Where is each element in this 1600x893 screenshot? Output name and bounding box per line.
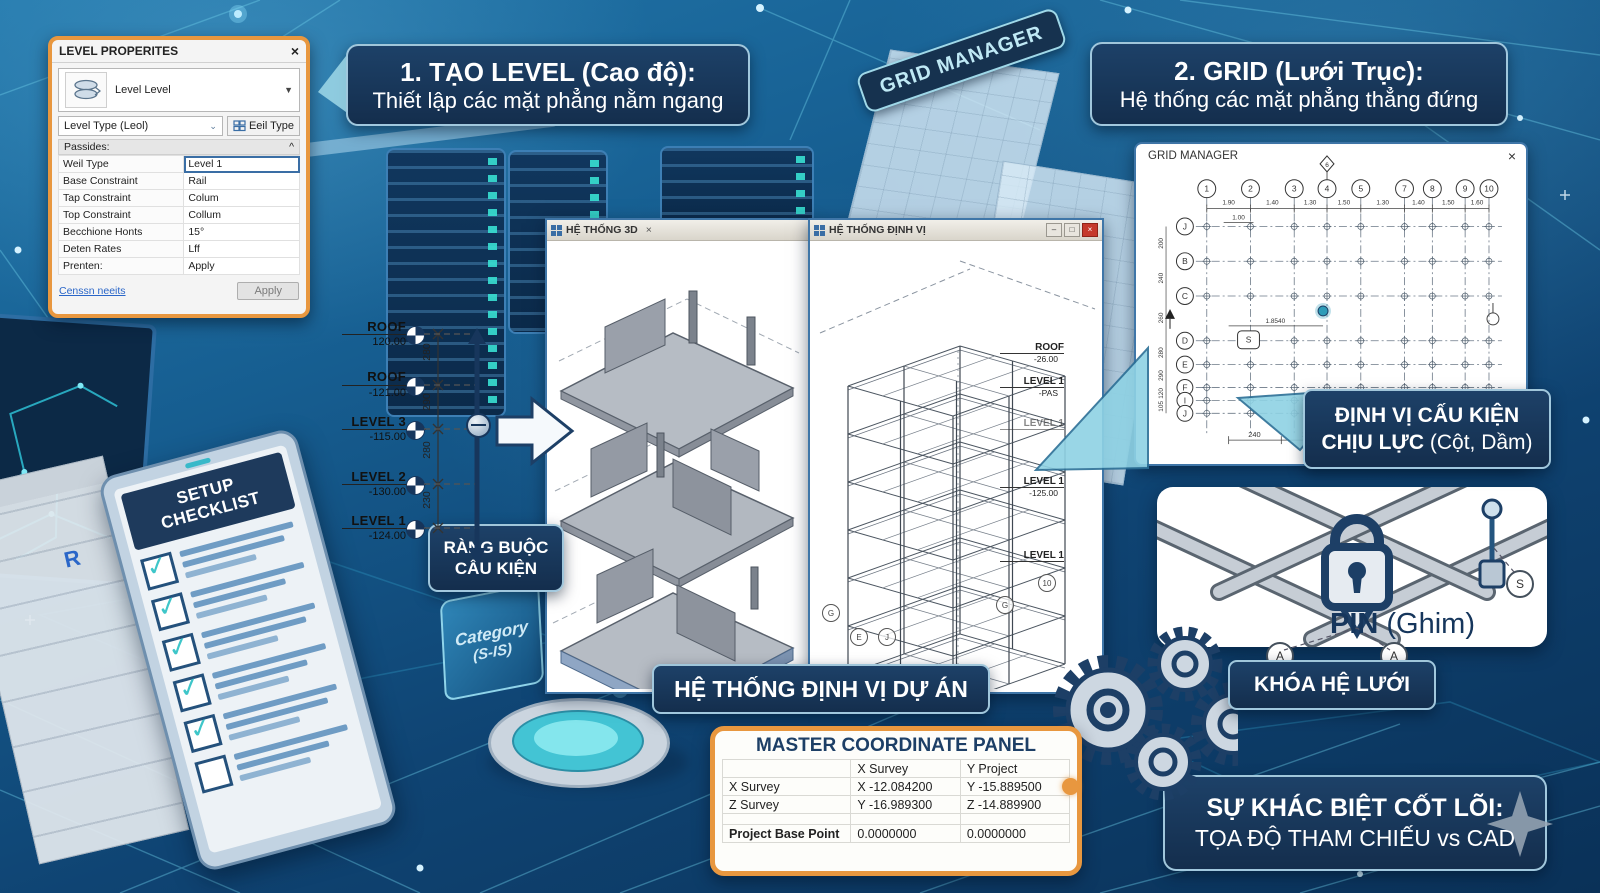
button-disc-highlight [534, 720, 618, 756]
table-row: Top ConstraintCollum [59, 207, 300, 224]
table-row: X Survey X -12.084200 Y -15.889500 [723, 778, 1070, 796]
viewer-3d-tabbar: HỆ THỐNG 3D × [547, 220, 810, 241]
banner-subtitle: TỌA ĐỘ THAM CHIẾU vs CAD [1165, 825, 1545, 852]
grid-bubble-label: 9 [1463, 184, 1468, 194]
checkbox-checked[interactable]: ✓ [183, 714, 222, 753]
level-spacing: 290 [421, 393, 433, 411]
prop-value[interactable]: Colum [184, 190, 300, 207]
prop-value[interactable]: Level 1 [184, 156, 300, 173]
highlighted-grid-node[interactable] [1318, 306, 1328, 316]
level-elevation[interactable]: -121.00 [340, 387, 406, 399]
master-coordinate-panel: MASTER COORDINATE PANEL X Survey Y Proje… [710, 726, 1082, 876]
grid-bubble-label: 10 [1484, 184, 1494, 194]
grid-dim: 1.50 [1442, 200, 1455, 207]
grid-dim: 1.50 [1338, 200, 1351, 207]
cell: Z Survey [723, 796, 851, 814]
cell[interactable]: Y -15.889500 [960, 778, 1069, 796]
type-selector[interactable]: Level Level ▼ [58, 68, 300, 112]
grid-bubble-label: I [1184, 395, 1186, 405]
banner-grid: 2. GRID (Lưới Trục): Hệ thống các mặt ph… [1090, 42, 1508, 126]
wf-level: LEVEL 1 -PAS [1000, 376, 1064, 398]
grid-bubble-label: 8 [1430, 184, 1435, 194]
checkbox-checked[interactable]: ✓ [151, 592, 190, 631]
viewer-3d-title[interactable]: HỆ THỐNG 3D [566, 224, 638, 236]
grid-bubble-label: 2 [1248, 184, 1253, 194]
check-icon: ✓ [175, 670, 204, 706]
prop-value[interactable]: 15° [184, 224, 300, 241]
prop-label: Top Constraint [59, 207, 184, 224]
prop-value[interactable]: Collum [184, 207, 300, 224]
prop-label: Becchione Honts [59, 224, 184, 241]
wf-level: LEVEL 1 [1000, 418, 1064, 430]
view-icon [814, 225, 825, 236]
wf-level: LEVEL 1 -125.00 [1000, 476, 1064, 498]
grid-dim: 1.30 [1304, 200, 1317, 207]
apply-button[interactable]: Apply [237, 282, 299, 300]
table-row: Weil TypeLevel 1 [59, 156, 300, 173]
wireframe-structure [810, 241, 1098, 689]
grid-dim: 280 [1158, 347, 1165, 358]
prop-label: Tap Constraint [59, 190, 184, 207]
grid-bubble-label: 7 [1402, 184, 1407, 194]
grid-dim: 1.40 [1412, 200, 1425, 207]
view-icon [551, 225, 562, 236]
cell[interactable]: X -12.084200 [851, 778, 960, 796]
wireframe-window: HỆ THỐNG ĐỊNH VỊ – □ × ROOF -26.00 LEVEL… [808, 218, 1104, 694]
minimize-button[interactable]: – [1046, 223, 1062, 237]
table-row: Becchione Honts15° [59, 224, 300, 241]
table-header-row: X Survey Y Project [723, 760, 1070, 778]
level-properties-dialog: LEVEL PROPERITES × Level Level ▼ Level T… [48, 36, 310, 318]
header-cell [723, 760, 851, 778]
table-row: Project Base Point 0.0000000 0.0000000 [723, 825, 1070, 843]
grid-bubble-label: 1 [1204, 184, 1209, 194]
cell: Project Base Point [723, 825, 851, 843]
prop-label: Base Constraint [59, 173, 184, 190]
wireframe-titlebar: HỆ THỐNG ĐỊNH VỊ – □ × [810, 220, 1102, 241]
table-row: Tap ConstraintColum [59, 190, 300, 207]
type-selector-label: Level Level [115, 84, 171, 96]
pin-label-rest: (Ghim) [1378, 608, 1475, 640]
coordinate-table: X Survey Y Project X Survey X -12.084200… [722, 759, 1070, 843]
level-name: LEVEL 1 [1000, 550, 1064, 562]
category-box: Category (S-IS) [442, 592, 542, 692]
cell[interactable]: Y -16.989300 [851, 796, 960, 814]
level-marker-icon [406, 421, 425, 440]
grid-dim: 290 [1158, 370, 1165, 381]
close-icon[interactable]: × [1508, 148, 1516, 164]
level-name[interactable]: LEVEL 1 [336, 513, 406, 528]
level-marker-icon [406, 520, 425, 539]
edit-type-label: Eeil Type [249, 120, 294, 132]
grid-dim: 1.30 [1376, 200, 1389, 207]
prop-label: Weil Type [59, 156, 184, 173]
prop-value[interactable]: Apply [184, 258, 300, 275]
grid-bubble-label: F [1182, 382, 1187, 392]
dialog-titlebar: LEVEL PROPERITES × [52, 40, 306, 63]
table-row: Z Survey Y -16.989300 Z -14.889900 [723, 796, 1070, 814]
grid-bubble: J [878, 628, 896, 646]
level-spacing: 280 [421, 343, 433, 361]
prop-label: Prenten: [59, 258, 184, 275]
grid-dim: 240 [1158, 272, 1165, 283]
grid-diamond-bubble: 6 [1325, 162, 1329, 169]
grid-bubble-label: 5 [1358, 184, 1363, 194]
level-elevation[interactable]: -124.00 [340, 530, 406, 542]
grid-bubble-label: 3 [1292, 184, 1297, 194]
table-row: Deten RatesLff [59, 241, 300, 258]
grid-bubble: G [996, 596, 1014, 614]
table-row-empty [723, 814, 1070, 825]
check-icon: ✓ [164, 630, 193, 666]
level-name[interactable]: LEVEL 2 [336, 469, 406, 484]
grid-bubble: G [822, 604, 840, 622]
level-name[interactable]: ROOF [336, 369, 406, 384]
grid-bubble-s: S [1506, 570, 1534, 598]
banner-title: KHÓA HỆ LƯỚI [1230, 673, 1434, 697]
parameters-section-header[interactable]: Passides: ^ [58, 139, 300, 155]
check-icon: ✓ [153, 589, 182, 625]
prop-label: Deten Rates [59, 241, 184, 258]
level-markers: ROOF 120.00 ROOF -121.00 LEVEL 3 -115.00… [336, 315, 486, 555]
cell[interactable]: Z -14.889900 [960, 796, 1069, 814]
close-icon[interactable]: × [291, 43, 299, 59]
checkbox-checked[interactable]: ✓ [140, 552, 179, 591]
close-button[interactable]: × [1082, 223, 1098, 237]
grid-dim: 260 [1158, 312, 1165, 323]
chevron-down-icon: ▼ [284, 85, 293, 95]
level-slider-handle[interactable] [466, 413, 491, 438]
banner-create-level: 1. TẠO LEVEL (Cao độ): Thiết lập các mặt… [346, 44, 750, 126]
pin-label-bold: PIN [1330, 608, 1378, 640]
callout-line2: (Cột, Dầm) [1424, 431, 1533, 454]
s-label: S [1246, 335, 1252, 345]
grid-dim: 1.00 [1232, 215, 1245, 222]
structural-callout: ĐỊNH VỊ CẤU KIỆN CHỊU LỰC (Cột, Dầm) [1303, 389, 1551, 469]
edit-type-icon [233, 120, 246, 132]
grid-bubble-label: J [1183, 221, 1187, 231]
dialog-title: LEVEL PROPERITES [59, 44, 178, 58]
callout-line1: ĐỊNH VỊ CẤU KIỆN [1305, 402, 1549, 429]
grid-bubble-label: E [1182, 360, 1188, 370]
grid-dim: 1.40 [1266, 200, 1279, 207]
check-icon: ✓ [186, 711, 215, 747]
checkbox-checked[interactable]: ✓ [173, 673, 212, 712]
grid-dim: 120 [1158, 388, 1165, 399]
level-elevation[interactable]: -130.00 [340, 486, 406, 498]
label-line: RÀNG BUỘC [430, 537, 562, 558]
cell: X Survey [723, 778, 851, 796]
maximize-button[interactable]: □ [1064, 223, 1080, 237]
grid-dim: 105 [1158, 401, 1165, 412]
wf-level: ROOF -26.00 [1000, 342, 1064, 364]
grid-dim: 240 [1248, 430, 1260, 439]
wf-level: LEVEL 1 [1000, 550, 1064, 562]
close-icon[interactable]: × [646, 224, 652, 236]
orange-connector-dot [1062, 778, 1079, 795]
grid-bubble-label: J [1183, 408, 1187, 418]
level-name: ROOF [1000, 342, 1064, 354]
viewer-3d-window: HỆ THỐNG 3D × [545, 218, 812, 694]
level-spacing: 230 [421, 491, 433, 509]
prop-value[interactable]: Rail [184, 173, 300, 190]
banner-subtitle: Thiết lập các mặt phẳng nằm ngang [348, 88, 748, 114]
rack-lights [488, 158, 497, 407]
header-cell: Y Project [960, 760, 1069, 778]
level-type-dropdown-label: Level Type (Leol) [64, 120, 148, 132]
check-icon: ✓ [143, 548, 172, 584]
pin-label: PIN (Ghim) [1330, 608, 1475, 641]
wireframe-title[interactable]: HỆ THỐNG ĐỊNH VỊ [829, 224, 926, 236]
header-cell: X Survey [851, 760, 960, 778]
level-spacing: 280 [421, 441, 433, 459]
grid-dim: 1.90 [1222, 200, 1235, 207]
grid-window-title: GRID MANAGER [1148, 150, 1238, 162]
rack-lights [796, 156, 805, 220]
grid-dim: 1.8540 [1265, 318, 1285, 325]
properties-table: Weil TypeLevel 1 Base ConstraintRail Tap… [58, 155, 300, 275]
edit-type-button[interactable]: Eeil Type [227, 116, 300, 136]
grid-bubble: E [850, 628, 868, 646]
banner-title: 1. TẠO LEVEL (Cao độ): [348, 57, 748, 88]
grid-bubble-label: 4 [1325, 184, 1330, 194]
cell[interactable]: 0.0000000 [960, 825, 1069, 843]
project-positioning-banner: HỆ THỐNG ĐỊNH VỊ DỰ ÁN [652, 664, 990, 714]
category-box-face: Category (S-IS) [440, 582, 544, 701]
checkbox-unchecked[interactable] [194, 754, 233, 793]
grid-bubble: 10 [1038, 574, 1056, 592]
table-row: Prenten:Apply [59, 258, 300, 275]
window-controls: – □ × [1046, 223, 1098, 237]
level-elevation[interactable]: 120.00 [340, 336, 406, 348]
rang-buoc-label: RÀNG BUỘC CẤU KIỆN [428, 524, 564, 592]
level-name[interactable]: LEVEL 3 [336, 414, 406, 429]
banner-subtitle: Hệ thống các mặt phẳng thẳng đứng [1092, 87, 1506, 113]
core-difference-banner: SỰ KHÁC BIỆT CỐT LÕI: TỌA ĐỘ THAM CHIẾU … [1163, 775, 1547, 871]
level-elevation: -26.00 [1000, 354, 1058, 364]
checkbox-checked[interactable]: ✓ [162, 633, 201, 672]
r-logo: R [62, 545, 83, 574]
level-type-icon [65, 72, 107, 108]
chevron-down-icon: ⌄ [209, 121, 217, 132]
grid-dim: 200 [1158, 238, 1165, 249]
dialog-link[interactable]: Censsn neeits [59, 285, 126, 297]
panel-title: MASTER COORDINATE PANEL [715, 735, 1077, 757]
banner-title: SỰ KHÁC BIỆT CỐT LÕI: [1165, 794, 1545, 823]
level-elevation[interactable]: -115.00 [340, 431, 406, 443]
prop-value[interactable]: Lff [184, 241, 300, 258]
grid-bubble-label: B [1182, 256, 1188, 266]
level-elevation: -125.00 [1000, 488, 1058, 498]
level-name: LEVEL 1 [1000, 418, 1064, 430]
level-type-dropdown[interactable]: Level Type (Leol) ⌄ [58, 116, 223, 136]
banner-title: HỆ THỐNG ĐỊNH VỊ DỰ ÁN [654, 676, 988, 703]
level-name: LEVEL 1 [1000, 476, 1064, 488]
section-label: Passides: [64, 141, 110, 153]
table-row: Base ConstraintRail [59, 173, 300, 190]
level-elevation: -PAS [1000, 388, 1058, 398]
infographic-canvas: R LEVEL PROPERITES × Level Level ▼ Level… [0, 0, 1600, 893]
level-name[interactable]: ROOF [336, 319, 406, 334]
grid-bubble-label: C [1182, 291, 1188, 301]
banner-title: 2. GRID (Lưới Trục): [1092, 56, 1506, 87]
grid-dim: 1.60 [1471, 200, 1484, 207]
level-name: LEVEL 1 [1000, 376, 1064, 388]
cell[interactable]: 0.0000000 [851, 825, 960, 843]
label-line: CẤU KIỆN [430, 558, 562, 579]
callout-line2-bold: CHỊU LỰC [1321, 431, 1424, 454]
exploded-floor-model [547, 241, 806, 689]
collapse-icon[interactable]: ^ [289, 141, 294, 153]
lock-grid-banner: KHÓA HỆ LƯỚI [1228, 660, 1436, 710]
grid-bubble-label: D [1182, 336, 1188, 346]
